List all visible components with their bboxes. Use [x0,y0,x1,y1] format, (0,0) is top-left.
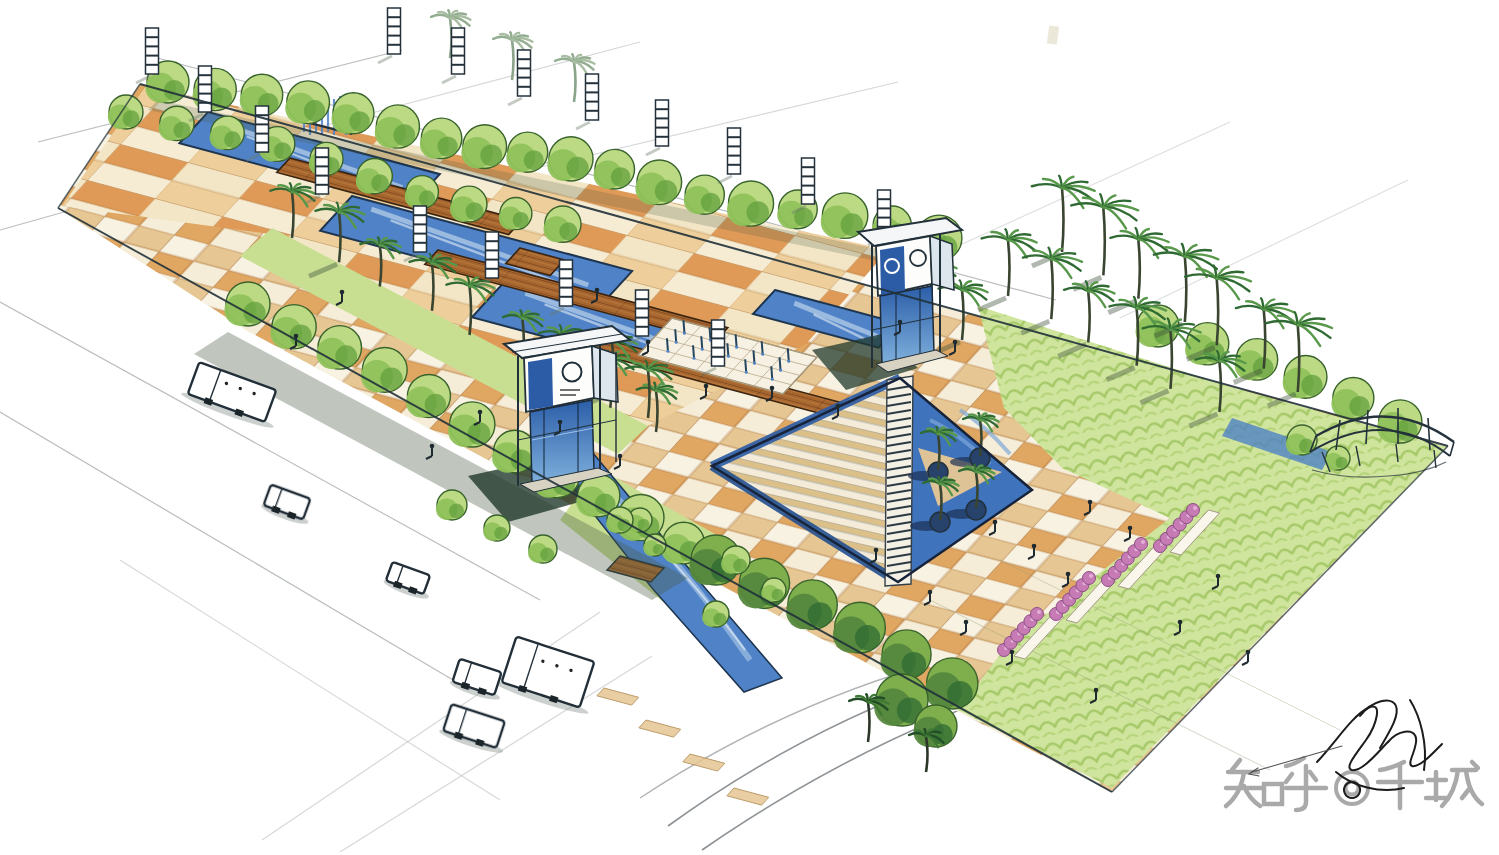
lamp-icon [898,320,903,325]
rendering-canvas: 知乎 @千城 Bird's-eye hand-drawn marker rend… [0,0,1499,855]
lamp-icon [964,620,969,625]
paper-smudge [1047,25,1059,44]
palm-trunk [1138,239,1140,298]
tree-icon [1349,396,1370,417]
lamp-icon [1010,650,1015,655]
tree-icon [540,548,554,562]
fountain-jet [745,359,746,372]
fountain-jet [667,338,668,351]
banded-light-column [388,8,401,54]
tree-icon [513,212,529,228]
paving-strip [639,720,681,737]
banded-light-column [256,106,269,152]
tree-icon [449,504,464,519]
tree-icon [713,613,726,626]
tree-icon [123,110,140,127]
lamp-icon [993,520,998,525]
palm-trunk [1062,188,1064,252]
lamp-icon [1216,574,1221,579]
lamp-icon [704,384,709,389]
tree-icon [1336,457,1348,469]
palm-trunk [1264,310,1266,369]
banded-light-column [560,260,573,306]
banded-light-column [802,158,815,204]
tree-icon [655,180,677,202]
lamp-icon [928,590,933,595]
tree-icon [1301,375,1322,396]
tree-icon [394,124,416,146]
palm-trunk [1217,278,1219,345]
tree-icon [164,80,185,101]
banded-light-column [636,290,649,336]
banded-light-column [414,206,427,252]
palm-trunk [1185,256,1187,322]
tree-icon [349,111,370,132]
palm-trunk [1219,361,1221,412]
lamp-icon [294,334,299,339]
lamp-icon [770,386,775,391]
lamp-icon [430,444,435,449]
palm-trunk [976,472,978,508]
lamp-icon [340,290,345,295]
tree-icon [733,559,747,573]
palm-trunk [926,736,928,772]
lamp-icon [646,340,651,345]
banded-light-column [199,66,212,112]
paving-strip [683,754,725,771]
banded-light-column [712,320,725,366]
fountain-jet [762,341,763,354]
tree-icon [224,131,241,148]
banded-light-column [586,74,599,120]
fountain-jet [675,329,676,342]
palm-trunk [574,62,576,102]
fountain-jet [693,345,694,358]
flower-bed [1135,538,1148,551]
lamp-icon [618,454,623,459]
tree-icon [380,368,402,390]
sketched-car [438,703,513,756]
lamp-icon [836,404,841,409]
tree-icon [567,157,589,179]
palm-trunk [1298,325,1300,392]
palm-trunk [292,192,294,238]
palm-trunk [962,290,964,340]
banded-light-column [146,28,159,74]
tree-icon [902,652,927,677]
lamp-icon [595,288,600,293]
palm-trunk [1170,330,1172,389]
lamp-icon [558,420,563,425]
flower-bed [1187,504,1200,517]
banded-light-column [728,128,741,174]
tree-icon [371,174,389,192]
fountain-jet [771,366,772,379]
tree-icon [274,142,291,159]
palm-trunk [868,702,870,742]
tree-icon [524,150,544,170]
palm-trunk [980,420,982,456]
palm-trunk [656,391,658,432]
tree-icon [747,201,770,224]
lamp-icon [1088,500,1093,505]
flower-bed [1083,572,1096,585]
fountain-jet [710,327,711,340]
lamp-icon [478,410,483,415]
tree-icon [437,136,457,156]
plaza-rendering [0,0,1499,855]
banded-light-column [656,100,669,146]
tree-icon [304,100,325,121]
tree-icon [466,202,484,220]
fountain-jet [736,334,737,347]
palm-trunk [470,286,472,335]
flower-bed [1031,608,1044,621]
tree-icon [494,527,507,540]
sketched-bus [493,635,604,718]
palm-trunk [1088,291,1090,342]
sketched-car [382,561,436,602]
fountain-jet [727,343,728,356]
tree-icon [480,144,502,166]
palm-trunk [940,484,942,520]
tree-icon [808,602,833,627]
sketched-car [448,658,508,703]
tree-icon [653,544,664,555]
tree-icon [559,222,577,240]
fountain-jet [683,320,684,333]
palm-trunk [1008,240,1010,296]
palm-trunk [938,434,940,470]
lamp-icon [953,340,958,345]
tree-icon [855,625,880,650]
tree-icon [419,190,435,206]
paving-strip [597,688,639,705]
palm-trunk [1137,308,1139,366]
lamp-icon [1066,572,1071,577]
tree-icon [611,167,631,187]
palm-trunk [339,212,341,262]
fountain-jet [780,357,781,370]
banded-light-column [452,28,465,74]
paving-strip [727,788,769,805]
fountain-jet [701,336,702,349]
palm-trunk [1051,259,1053,319]
lamp-icon [1178,620,1183,625]
sketched-car [259,484,316,528]
lamp-icon [1094,688,1099,693]
lamp-icon [1128,526,1133,531]
paving-strips-road-edge [597,688,769,805]
palm-shadow [978,298,1006,310]
tree-icon [772,589,784,601]
palm-trunk [380,245,382,286]
fountain-jet [753,350,754,363]
banded-light-column [316,148,329,194]
lamp-icon [1032,544,1037,549]
tree-icon [701,193,721,213]
lamp-icon [874,548,879,553]
banded-light-column [486,232,499,278]
palm-trunk [1103,207,1105,275]
fountain-jet [788,348,789,361]
banded-light-column [518,50,531,96]
palm-trunk [512,40,514,80]
palm-trunk [648,370,650,418]
tree-icon [174,122,191,139]
palm-trunk [432,263,434,311]
